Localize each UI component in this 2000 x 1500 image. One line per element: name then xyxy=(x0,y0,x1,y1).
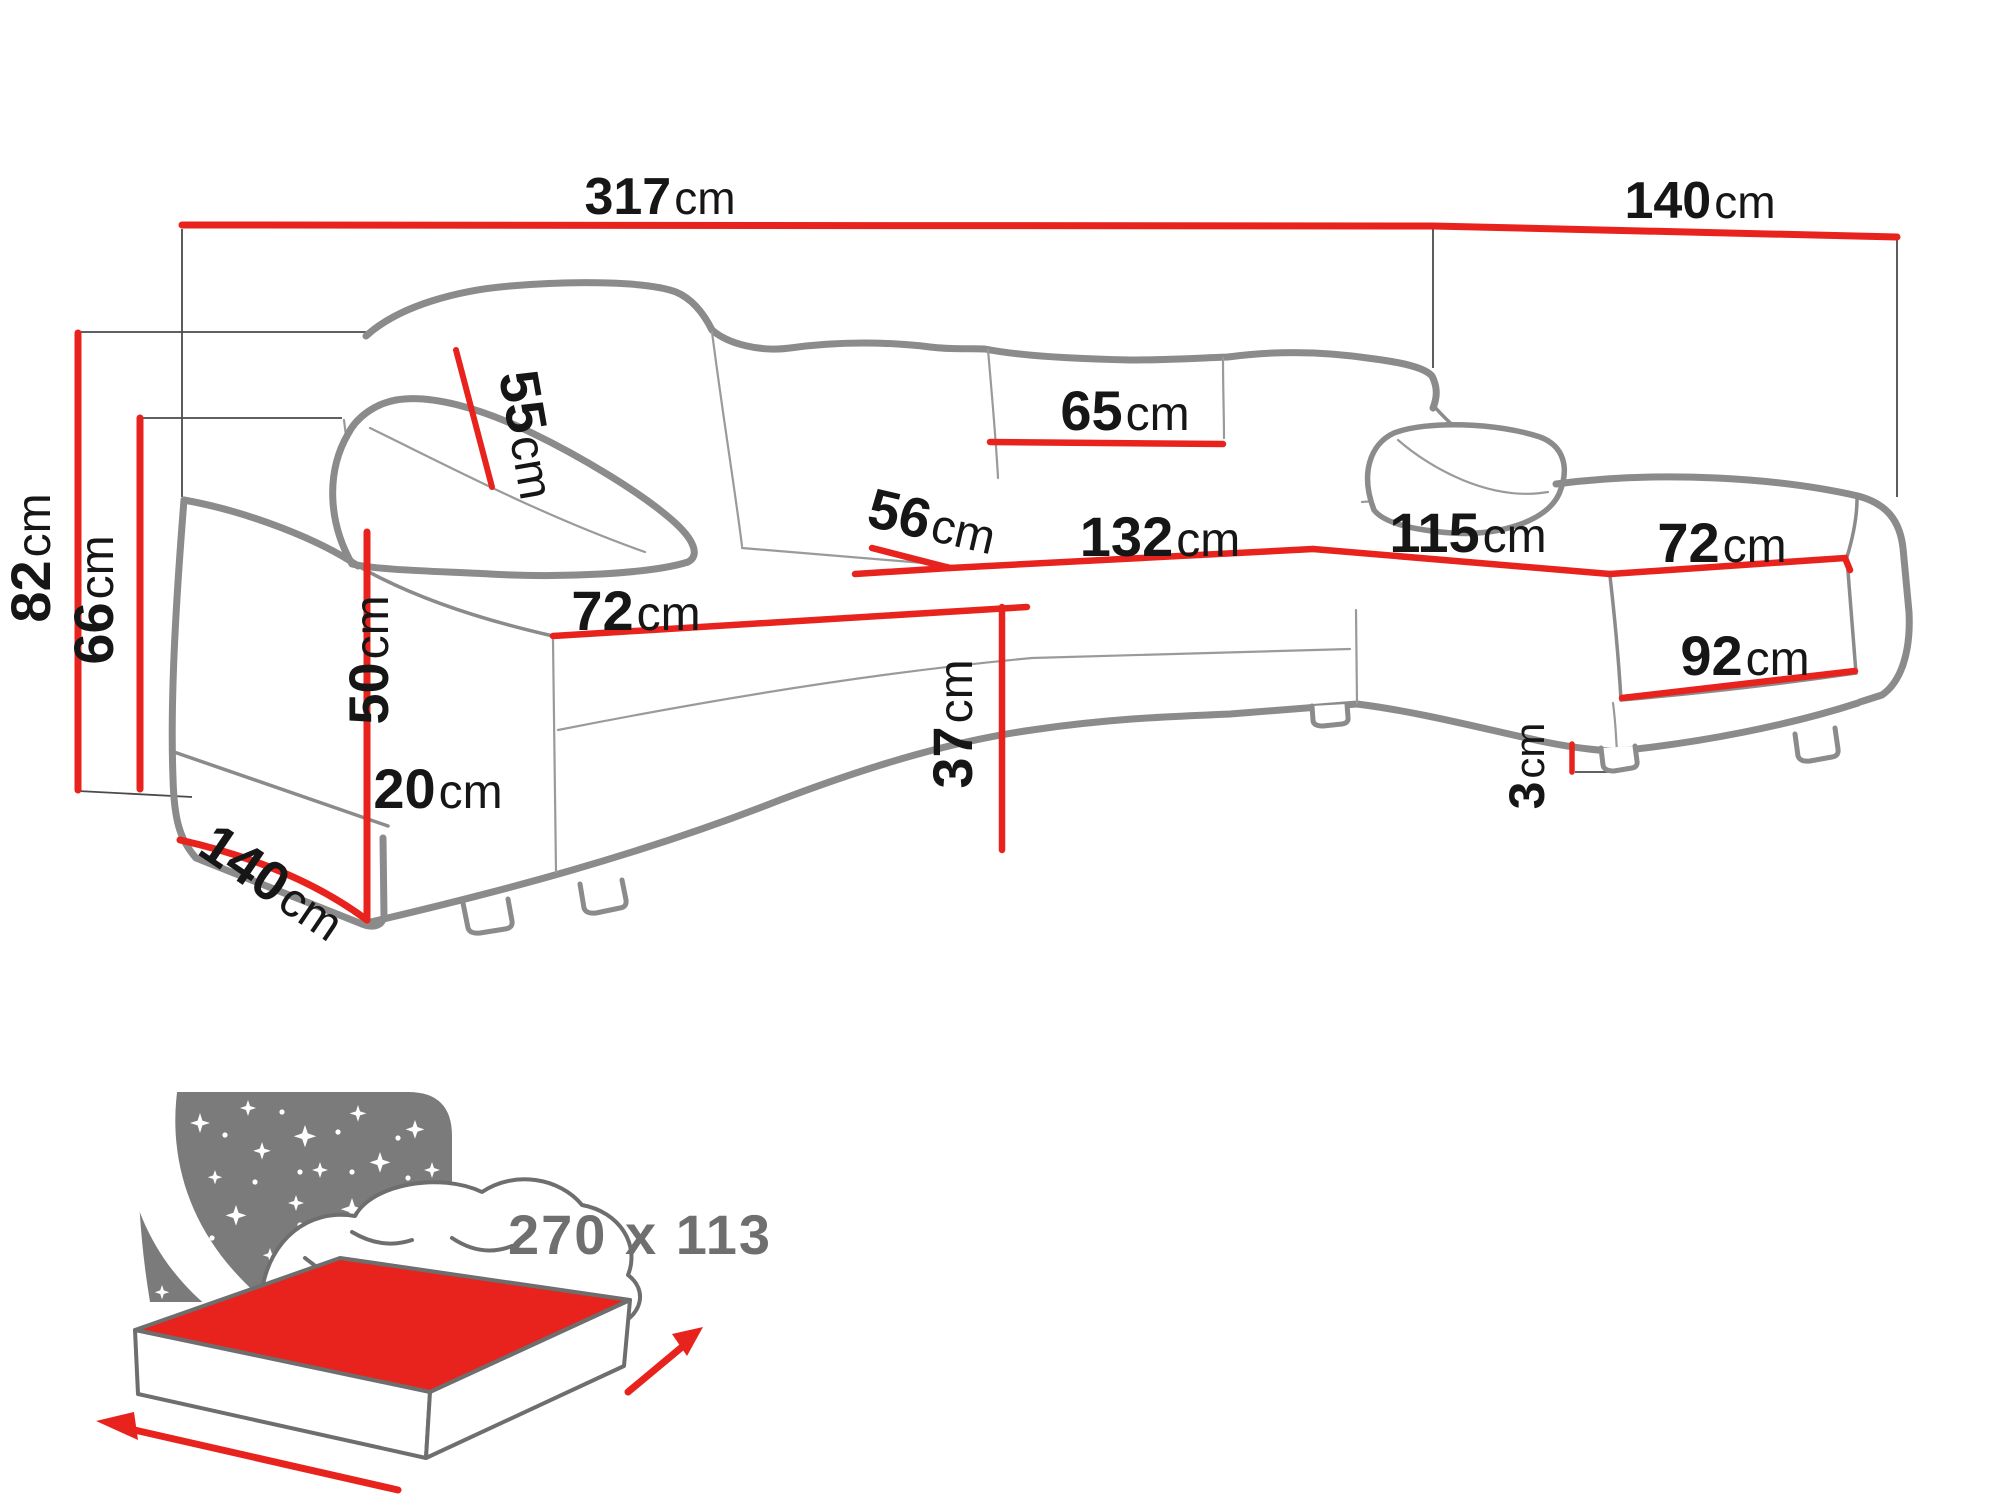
chaise-front-left-edge xyxy=(1610,576,1621,700)
dim-left-seat-width-label: 72cm xyxy=(571,579,700,642)
dim-middle-seat-width-label: 132cm xyxy=(1080,505,1240,568)
star-dot xyxy=(405,1175,410,1180)
dim-leg-height-label: 3cm xyxy=(1499,723,1555,810)
dim-total-width-label: 317cm xyxy=(584,168,735,226)
star-dot xyxy=(349,1169,354,1174)
middle-chaise-seam xyxy=(1356,610,1357,703)
depth-arrow-line xyxy=(628,1342,688,1392)
diagram-page: 317cm 140cm 82cm 66cm 55cm 65cm 56cm 132… xyxy=(0,0,2000,1500)
dim-line-back-cushion-width xyxy=(990,442,1223,444)
star-dot xyxy=(335,1129,340,1134)
dim-right-front-width-label: 92cm xyxy=(1680,624,1809,687)
sleeping-area-icon: 270 x 113 xyxy=(96,1085,772,1490)
dim-backrest-height-label: 66cm xyxy=(62,535,125,664)
sofa-legs xyxy=(463,704,1838,933)
sofa-leg xyxy=(1795,728,1838,761)
sofa-line-drawing xyxy=(172,283,1909,934)
dim-total-height-label: 82cm xyxy=(0,493,62,622)
dim-armrest-height-label: 50cm xyxy=(337,595,400,724)
sofa-leg xyxy=(463,899,512,933)
star-dot xyxy=(252,1179,257,1184)
dim-right-seat-length-label: 115cm xyxy=(1389,501,1546,564)
chaise-front-right-edge xyxy=(1847,559,1856,673)
cushion-seam-left xyxy=(712,332,742,546)
sofa-leg xyxy=(1312,704,1348,726)
sleeping-area-size: 270 x 113 xyxy=(508,1203,772,1266)
left-arm-rail-seam xyxy=(174,752,388,826)
star-dot xyxy=(222,1132,227,1137)
width-arrow-head-icon xyxy=(96,1412,138,1440)
left-module-seam xyxy=(553,640,556,872)
chaise-base-left-edge xyxy=(1613,703,1617,751)
sofa-leg xyxy=(580,880,626,913)
dim-seat-height-label: 37cm xyxy=(921,659,984,788)
red-dimension-lines xyxy=(78,225,1897,920)
dim-right-seat-width-label: 72cm xyxy=(1657,511,1786,574)
dim-left-depth-diagonal-label: 140cm xyxy=(189,811,357,953)
star-dot xyxy=(279,1109,284,1114)
sofa-dimension-diagram: 317cm 140cm 82cm 66cm 55cm 65cm 56cm 132… xyxy=(0,0,2000,1500)
dim-base-height-label: 20cm xyxy=(373,757,502,820)
dim-back-cushion-width-label: 65cm xyxy=(1060,379,1189,442)
right-arm-inner-edge xyxy=(1847,499,1857,557)
sofa-leg xyxy=(1601,746,1637,771)
star-dot xyxy=(395,1135,400,1140)
star-dot xyxy=(297,1169,302,1174)
dim-right-depth-label: 140cm xyxy=(1624,172,1775,230)
cushion-seam-middle xyxy=(988,350,998,478)
cushion-seam-right xyxy=(1223,358,1224,438)
sofa-bottom-edge xyxy=(362,704,1617,924)
